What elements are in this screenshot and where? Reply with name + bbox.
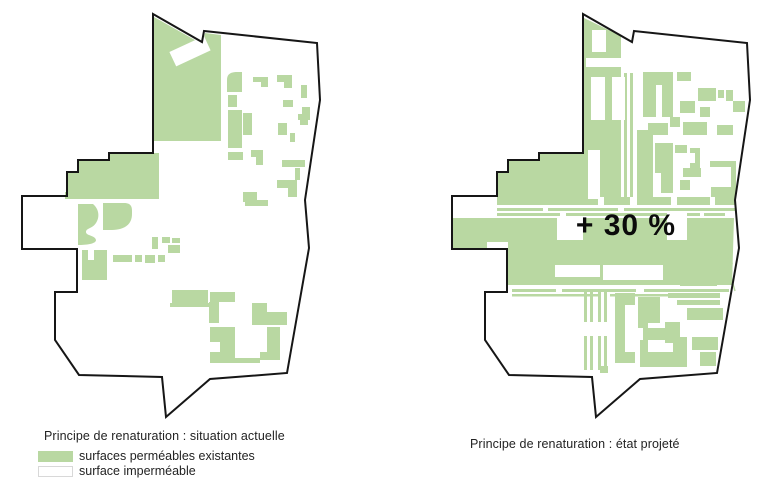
maps-canvas [0, 0, 768, 488]
permeable-surface-shape [210, 292, 235, 302]
permeable-surface-shape [687, 308, 723, 320]
impermeable-cutout-shape [603, 265, 663, 280]
legend-label-permeable: surfaces perméables existantes [79, 449, 255, 463]
permeable-surface-shape [154, 17, 221, 141]
permeable-surface-shape [680, 283, 717, 286]
permeable-surface-shape [282, 160, 305, 167]
permeable-surface-shape [497, 197, 598, 205]
permeable-surface-shape [683, 122, 707, 135]
permeable-surface-shape [301, 85, 307, 98]
permeable-surface-shape [82, 250, 107, 280]
permeable-surface-shape [640, 340, 648, 367]
permeable-surface-shape [600, 366, 608, 373]
impermeable-cutout-shape [656, 85, 662, 117]
permeable-surface-shape [655, 143, 673, 193]
permeable-surface-shape [172, 290, 208, 303]
impermeable-cutout-shape [555, 265, 600, 277]
permeable-surface-shape [637, 130, 653, 203]
impermeable-surface-swatch [38, 466, 73, 477]
permeable-surface-shape [245, 200, 268, 206]
permeable-surface-shape [598, 336, 601, 370]
permeable-surface-shape [677, 300, 720, 305]
permeable-surface-shape [683, 168, 701, 177]
right-map-caption: Principe de renaturation : état projeté [470, 437, 680, 451]
permeable-surface-shape [604, 292, 607, 322]
permeable-surface-shape [668, 293, 720, 298]
permeable-surface-shape [598, 292, 601, 322]
permeable-surface-shape [584, 292, 587, 322]
impermeable-cutout-shape [588, 150, 600, 199]
map-current-state [22, 14, 320, 417]
permeable-surface-shape [704, 213, 725, 216]
permeable-surface-shape [718, 90, 724, 98]
permeable-surface-shape [277, 75, 292, 88]
permeable-surface-shape [243, 113, 252, 135]
permeable-surface-shape [677, 72, 691, 81]
permeable-surface-shape [677, 197, 710, 205]
permeable-surface-shape [283, 100, 293, 107]
permeable-surface-shape [604, 336, 607, 370]
permeable-surface-shape [615, 293, 635, 363]
permeable-surface-shape [278, 123, 287, 135]
permeable-surface-shape [253, 77, 268, 87]
permeable-surface-shape [700, 107, 710, 117]
permeable-surface-shape [228, 95, 237, 107]
permeable-surface-shape [726, 90, 733, 101]
permeable-surface-shape [638, 323, 648, 328]
permeable-surface-shape [103, 203, 132, 230]
permeable-surface-shape [733, 101, 745, 112]
permeable-surface-shape [644, 289, 729, 292]
permeable-surface-shape [78, 204, 98, 245]
impermeable-cutout-shape [487, 242, 508, 252]
impermeable-cutout-shape [690, 153, 695, 163]
permeable-surface-shape [290, 133, 295, 142]
permeable-surface-shape [252, 303, 287, 325]
legend-label-impermeable: surface imperméable [79, 464, 196, 478]
permeable-surface-shape [680, 180, 690, 190]
permeable-surface-shape [145, 255, 155, 263]
permeable-surface-shape [251, 150, 263, 165]
permeable-surface-shape [497, 208, 543, 211]
legend-item-permeable: surfaces perméables existantes [38, 450, 255, 462]
permeable-surface-shape [562, 289, 636, 292]
permeable-surface-shape [711, 187, 731, 197]
permeable-surface-shape [715, 197, 735, 205]
permeable-surface-shape [675, 145, 687, 153]
impermeable-cutout-shape [591, 77, 605, 120]
permeable-surface-shape [692, 337, 718, 350]
permeable-surface-shape [698, 88, 716, 101]
permeable-surface-shape [152, 237, 158, 249]
permeable-surface-shape [295, 168, 300, 180]
permeable-surface-shape [227, 72, 242, 92]
permeable-surface-shape [680, 101, 695, 113]
permeable-surface-shape [135, 255, 142, 262]
permeable-surface-swatch [38, 451, 73, 462]
left-map-caption: Principe de renaturation : situation act… [44, 429, 285, 443]
permeable-surface-shape [162, 237, 170, 243]
permeable-surface-shape [277, 180, 297, 197]
permeable-surface-shape [717, 125, 733, 135]
legend-item-impermeable: surface imperméable [38, 465, 255, 477]
permeable-surface-shape [228, 152, 243, 160]
permeable-surface-shape [158, 255, 165, 262]
permeable-surface-shape [210, 327, 235, 363]
permeable-surface-shape [512, 289, 556, 292]
permeable-surface-shape [584, 336, 587, 370]
legend: surfaces perméables existantes surface i… [38, 450, 255, 477]
permeable-surface-shape [643, 328, 667, 340]
permeable-surface-shape [300, 120, 308, 125]
permeable-surface-shape [113, 255, 132, 262]
permeable-surface-shape [170, 303, 209, 307]
permeable-surface-shape [642, 337, 687, 367]
permeable-surface-shape [235, 358, 260, 363]
permeable-surface-shape [209, 302, 219, 323]
permeable-surface-shape [700, 352, 716, 366]
permeable-surface-shape [298, 107, 310, 120]
impermeable-cutout-shape [586, 58, 621, 67]
permeable-surface-shape [630, 73, 633, 197]
permeable-surface-shape [670, 117, 680, 127]
impermeable-cutout-shape [592, 30, 606, 52]
renaturation-figure: + 30 % Principe de renaturation : situat… [0, 0, 768, 488]
impermeable-cutout-shape [612, 77, 625, 120]
permeable-surface-shape [604, 197, 630, 205]
permeable-surface-shape [638, 297, 660, 323]
permeable-surface-shape [172, 238, 180, 243]
permeable-surface-shape [168, 245, 180, 253]
permeable-surface-shape [497, 213, 560, 216]
permeable-surface-shape [590, 336, 593, 370]
permeable-surface-shape [260, 327, 280, 360]
increase-percentage-label: + 30 % [564, 209, 688, 243]
permeable-surface-shape [228, 110, 242, 148]
permeable-surface-shape [590, 292, 593, 322]
fan-tree-symbol-line [731, 263, 732, 277]
